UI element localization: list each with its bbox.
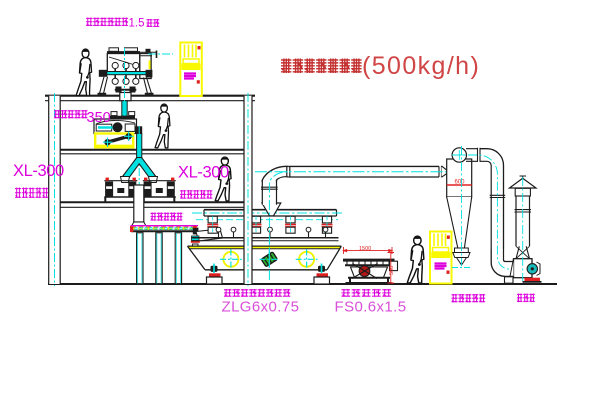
svg-text:(500kg/h): (500kg/h) xyxy=(362,52,480,80)
svg-text:1.5: 1.5 xyxy=(129,18,145,30)
svg-text:580: 580 xyxy=(389,266,395,275)
svg-text:ZLG6x0.75: ZLG6x0.75 xyxy=(222,299,300,316)
svg-text:350: 350 xyxy=(87,110,111,126)
svg-text:FS0.6x1.5: FS0.6x1.5 xyxy=(335,299,407,316)
svg-text:XL-300: XL-300 xyxy=(13,162,64,180)
svg-text:1500: 1500 xyxy=(359,246,371,252)
svg-text:600: 600 xyxy=(455,180,466,186)
svg-text:XL-300: XL-300 xyxy=(178,164,229,182)
